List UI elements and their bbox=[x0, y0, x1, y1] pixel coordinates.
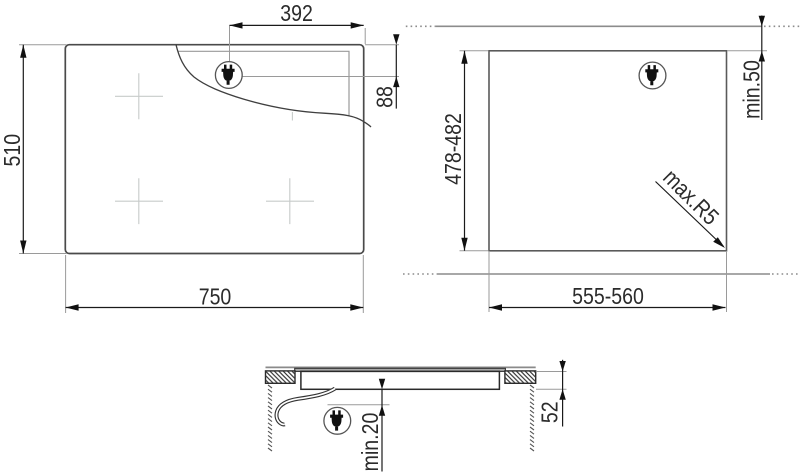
svg-text:min.50: min.50 bbox=[739, 60, 765, 119]
svg-text:750: 750 bbox=[199, 284, 232, 310]
svg-text:478-482: 478-482 bbox=[441, 113, 467, 185]
svg-text:510: 510 bbox=[0, 134, 25, 167]
svg-text:555-560: 555-560 bbox=[572, 284, 644, 310]
svg-text:88: 88 bbox=[372, 86, 398, 108]
svg-text:392: 392 bbox=[280, 0, 313, 26]
svg-text:min.20: min.20 bbox=[358, 413, 384, 472]
svg-text:52: 52 bbox=[537, 401, 563, 423]
